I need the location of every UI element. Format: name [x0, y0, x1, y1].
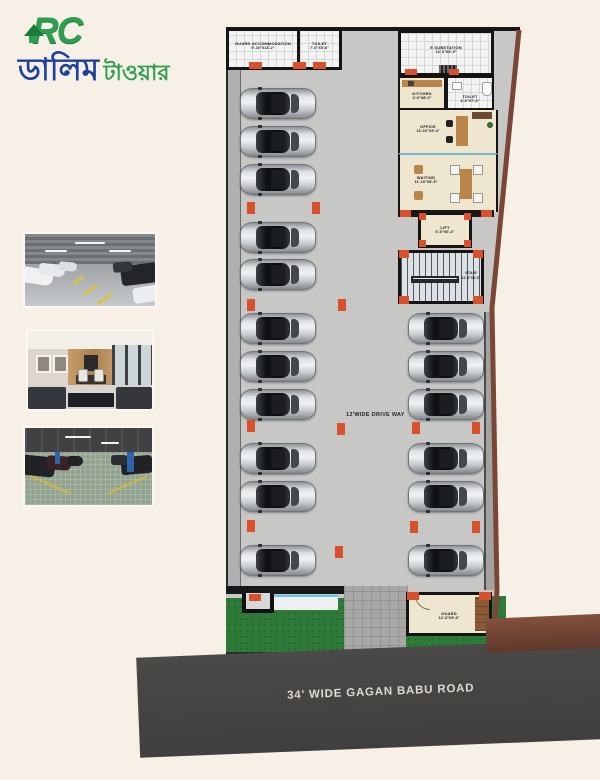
car-rear-window — [459, 395, 467, 414]
car-roof — [271, 132, 284, 151]
parked-car — [240, 259, 316, 290]
car-mirror — [258, 442, 262, 445]
parking-column-marker — [247, 520, 255, 532]
car-rear-window — [291, 449, 299, 468]
parked-car — [240, 545, 316, 576]
car-roof — [271, 449, 284, 468]
car-roof — [271, 487, 284, 506]
car-mirror — [426, 388, 430, 391]
car-roof — [439, 395, 452, 414]
road: 34' WIDE GAGAN BABU ROAD — [136, 638, 600, 757]
car-rear-window — [291, 357, 299, 376]
parked-car — [240, 389, 316, 420]
car-roof — [439, 551, 452, 570]
car-rear-window — [291, 265, 299, 284]
parked-car — [240, 443, 316, 474]
parking-column-marker — [472, 521, 480, 533]
car-mirror — [426, 544, 430, 547]
flyer-page: RC ডালিম টাওয়ার — [0, 0, 600, 780]
car-rear-window — [459, 487, 467, 506]
car-mirror — [258, 418, 262, 421]
car-roof — [439, 357, 452, 376]
car-mirror — [258, 221, 262, 224]
car-mirror — [258, 342, 262, 345]
car-rear-window — [459, 449, 467, 468]
car-mirror — [258, 350, 262, 353]
car-mirror — [258, 251, 262, 254]
parked-car — [408, 313, 484, 344]
parking-column-marker — [338, 299, 346, 311]
car-rear-window — [291, 94, 299, 113]
car-roof — [271, 265, 284, 284]
parked-car — [240, 88, 316, 119]
car-roof — [439, 487, 452, 506]
car-roof — [439, 449, 452, 468]
car-rear-window — [291, 228, 299, 247]
car-mirror — [258, 288, 262, 291]
car-mirror — [258, 388, 262, 391]
car-rear-window — [291, 487, 299, 506]
parked-car — [240, 126, 316, 157]
parking-column-marker — [312, 202, 320, 214]
car-mirror — [426, 342, 430, 345]
parked-car — [240, 313, 316, 344]
car-rear-window — [291, 170, 299, 189]
car-rear-window — [459, 551, 467, 570]
parking-column-marker — [410, 521, 418, 533]
car-roof — [271, 94, 284, 113]
car-mirror — [258, 258, 262, 261]
parked-car — [408, 351, 484, 382]
parked-car — [408, 545, 484, 576]
car-mirror — [426, 480, 430, 483]
parked-car — [240, 164, 316, 195]
car-roof — [271, 357, 284, 376]
car-mirror — [426, 442, 430, 445]
parking-column-marker — [472, 422, 480, 434]
parked-car — [408, 389, 484, 420]
car-mirror — [258, 574, 262, 577]
car-rear-window — [291, 319, 299, 338]
parking-column-marker — [247, 202, 255, 214]
car-rear-window — [291, 132, 299, 151]
car-mirror — [426, 472, 430, 475]
driveway-label: 12'WIDE DRIVE WAY — [346, 412, 405, 418]
car-mirror — [258, 510, 262, 513]
car-roof — [271, 319, 284, 338]
car-roof — [271, 170, 284, 189]
car-roof — [271, 551, 284, 570]
parking-column-marker — [337, 423, 345, 435]
parked-car — [408, 481, 484, 512]
parking-column-marker — [247, 420, 255, 432]
car-mirror — [258, 380, 262, 383]
car-mirror — [258, 544, 262, 547]
car-mirror — [258, 125, 262, 128]
car-mirror — [258, 472, 262, 475]
car-mirror — [258, 163, 262, 166]
car-mirror — [426, 312, 430, 315]
car-mirror — [258, 117, 262, 120]
car-mirror — [258, 312, 262, 315]
car-mirror — [426, 574, 430, 577]
parked-car — [240, 222, 316, 253]
car-mirror — [426, 350, 430, 353]
car-rear-window — [459, 319, 467, 338]
car-roof — [271, 228, 284, 247]
boundary-wall-wedge — [485, 613, 600, 653]
road-label: 34' WIDE GAGAN BABU ROAD — [287, 682, 475, 702]
parking-column-marker — [412, 422, 420, 434]
parked-car — [240, 351, 316, 382]
parking-column-marker — [335, 546, 343, 558]
car-mirror — [258, 87, 262, 90]
car-mirror — [258, 155, 262, 158]
car-rear-window — [459, 357, 467, 376]
car-roof — [439, 319, 452, 338]
car-mirror — [426, 510, 430, 513]
parked-car — [240, 481, 316, 512]
car-mirror — [426, 418, 430, 421]
car-roof — [271, 395, 284, 414]
car-mirror — [258, 193, 262, 196]
car-mirror — [258, 480, 262, 483]
car-rear-window — [291, 551, 299, 570]
car-rear-window — [291, 395, 299, 414]
parked-car — [408, 443, 484, 474]
parking-column-marker — [247, 299, 255, 311]
car-mirror — [426, 380, 430, 383]
